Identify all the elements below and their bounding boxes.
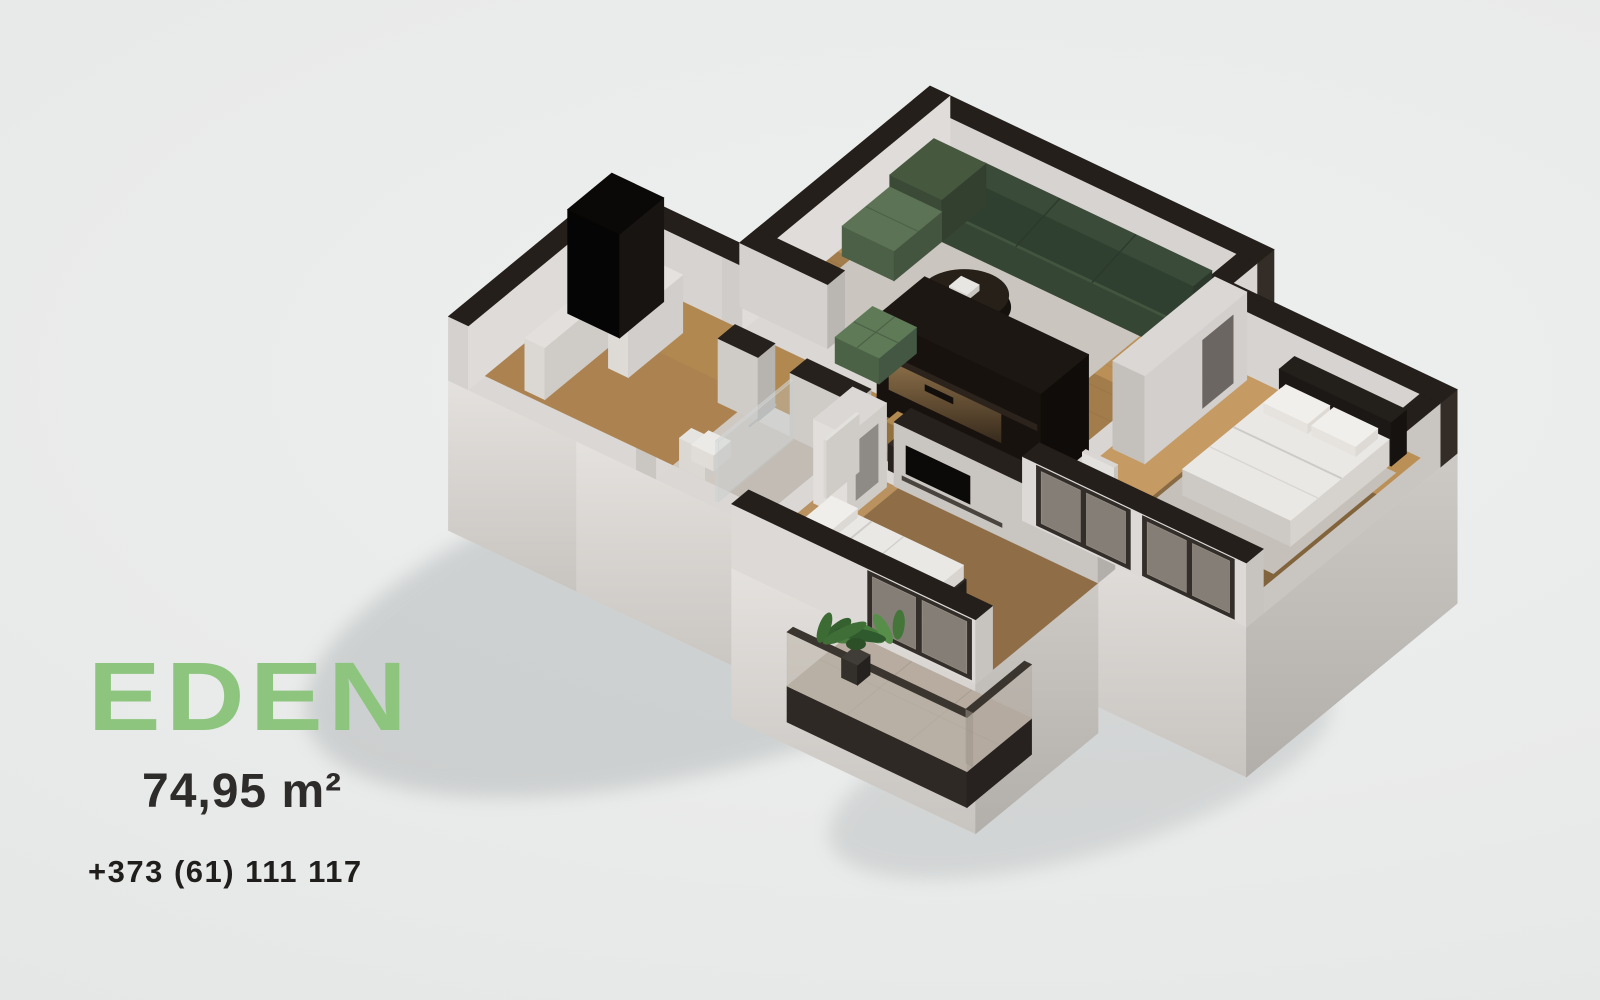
area-label: 74,95 m² (142, 764, 342, 819)
page: EDEN 74,95 m² +373 (61) 111 117 (0, 0, 1600, 1000)
floorplan-3d-render (0, 0, 1600, 1000)
bedroom2-door-leaf (824, 439, 827, 498)
phone-number: +373 (61) 111 117 (88, 854, 363, 890)
brand-logo: EDEN (88, 648, 412, 745)
master-wardrobe (1113, 361, 1145, 464)
balcony-glass-rail (966, 709, 973, 767)
listing-info: EDEN 74,95 m² +373 (61) 111 117 (88, 648, 378, 745)
entry-partition (525, 338, 545, 400)
shower-glass (716, 441, 719, 502)
